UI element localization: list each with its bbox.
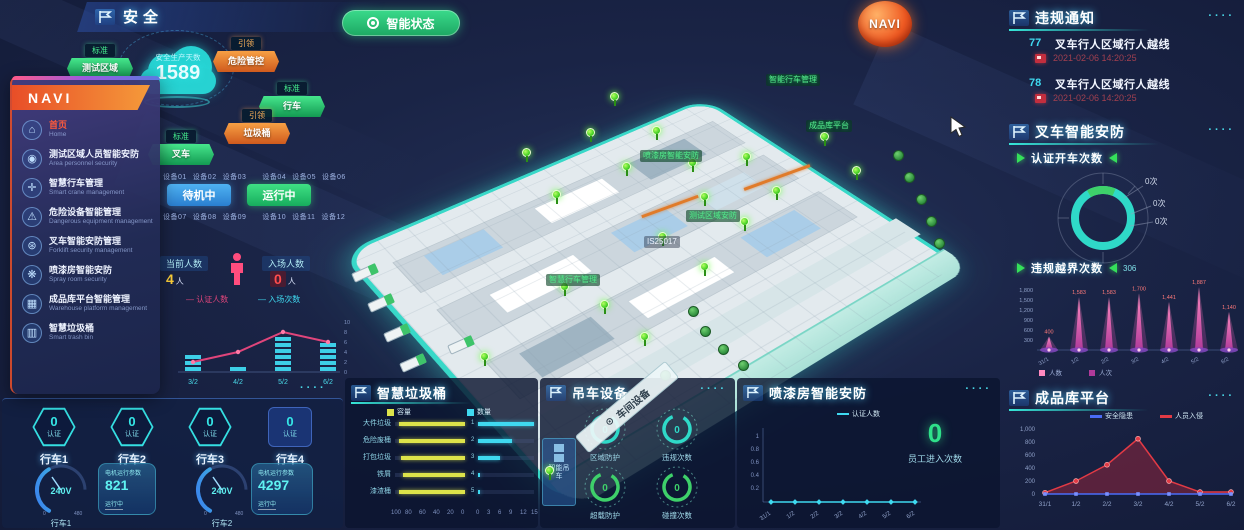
legend-label: 安全隐患 <box>1105 411 1133 421</box>
device-tag: 设备11 <box>292 212 315 222</box>
svg-text:200: 200 <box>1025 479 1036 485</box>
person-icon <box>228 252 246 291</box>
svg-text:240V: 240V <box>50 486 71 496</box>
flag-icon <box>95 9 115 25</box>
sidebar-item-5[interactable]: ⊛叉车智能安防管理Forklift security management <box>22 236 156 256</box>
trash-bar-track <box>478 490 534 494</box>
navi-logo-text: NAVI <box>869 17 901 31</box>
axis-tick: 12 <box>520 510 527 516</box>
trash-count-bar <box>478 422 534 426</box>
legend-hazard: 安全隐患 <box>1090 411 1133 421</box>
dashboard-screen: 智能行车管理成品库平台喷漆房智能安防测试区域安防智慧行车管理IS25017⊙车间… <box>0 0 1244 530</box>
legend-capacity: 容量 <box>387 407 411 417</box>
crane-ring-label: 违规次数 <box>647 452 707 463</box>
svg-text:1/2: 1/2 <box>1070 357 1080 366</box>
trash-row-num: 5 <box>471 488 474 494</box>
running-button-label: 运行中 <box>263 187 296 203</box>
badge-name: 垃圾桶 <box>224 123 290 144</box>
legend-count-label: 数量 <box>477 407 491 417</box>
employee-entry-value: 0 <box>905 418 965 449</box>
violation-title: 叉车行人区域行人越线 <box>1055 76 1170 92</box>
sidebar-item-3[interactable]: ✛智慧行车管理Smart crane management <box>22 178 156 198</box>
crane-ring-gauge: 0 <box>654 464 700 510</box>
device-tag: 设备09 <box>223 212 247 222</box>
violation-row[interactable]: 78叉车行人区域行人越线2021-02-06 14:20:25 <box>1005 74 1241 112</box>
standby-button[interactable]: 待机中 <box>167 184 231 206</box>
play-icon <box>1017 153 1025 163</box>
badge-危险管控: 引领危险管控 <box>213 33 279 72</box>
svg-text:4/2: 4/2 <box>233 379 243 386</box>
badge-tier: 标准 <box>166 130 196 143</box>
trash-count-bar <box>478 473 480 477</box>
svg-text:0.6: 0.6 <box>751 460 760 466</box>
motor-card-value: 4297 <box>258 477 306 493</box>
panel-dots[interactable]: ···· <box>700 383 727 395</box>
svg-text:1,800: 1,800 <box>1019 288 1033 294</box>
paint-chart-svg: 10.80.60.40.2 31/11/22/23/24/25/26/2 <box>741 414 931 520</box>
svg-text:1/2: 1/2 <box>786 510 797 520</box>
trash-bar-track <box>395 456 465 460</box>
warning-icon: ⚠ <box>22 207 42 227</box>
sidebar-item-label: 成品库平台智能管理 <box>49 294 147 305</box>
hex-box: 0认证 <box>268 407 312 447</box>
smart-crane-label: 智能吊车 <box>546 465 572 481</box>
cross-border-chart: 1,8001,5001,200900600300 400 31/1 1,583 … <box>1005 274 1241 385</box>
svg-text:31/1: 31/1 <box>759 510 773 520</box>
trash-cat-label: 大件垃圾 <box>347 420 391 428</box>
svg-text:400: 400 <box>1044 330 1053 336</box>
sidebar-item-label: 喷漆房智能安防 <box>49 265 112 276</box>
device-tag: 设备04 <box>262 172 286 182</box>
cursor-icon <box>950 116 970 138</box>
gauge-name: 行车1 <box>31 518 91 529</box>
sidebar-item-text: 智慧垃圾桶Smart trash bin <box>49 323 94 342</box>
panel-dots[interactable]: ···· <box>965 383 992 395</box>
trash-bar-track <box>478 439 534 443</box>
svg-text:480: 480 <box>235 511 244 517</box>
voltage-gauge: 240V 0 480 <box>26 459 96 519</box>
svg-text:1,441: 1,441 <box>1162 295 1176 301</box>
svg-text:1,700: 1,700 <box>1132 286 1146 292</box>
svg-text:0: 0 <box>204 511 207 517</box>
svg-text:2: 2 <box>344 360 347 366</box>
enter-people-label: 入场人数 <box>262 256 310 271</box>
svg-text:0: 0 <box>344 370 347 376</box>
sidebar-item-text: 首页Home <box>49 120 67 139</box>
trash-cat-label: 打包垃圾 <box>347 454 391 462</box>
cross-chart-svg: 1,8001,5001,200900600300 400 31/1 1,583 … <box>1005 274 1241 380</box>
device-tag: 设备08 <box>193 212 217 222</box>
crane-thumb <box>554 444 564 452</box>
hex-value: 0 <box>206 415 213 429</box>
device-tag: 设备10 <box>262 212 286 222</box>
svg-text:900: 900 <box>1024 318 1033 324</box>
play-back-icon <box>1109 263 1117 273</box>
violation-panel: 违规通知 ···· 77叉车行人区域行人越线2021-02-06 14:20:2… <box>1005 4 1241 116</box>
trash-bar-track <box>478 422 534 426</box>
donut-svg: 0次 0次 0次 <box>1035 162 1185 272</box>
axis-tick: 15 <box>531 510 538 516</box>
svg-text:6: 6 <box>344 340 347 346</box>
status-button[interactable]: 智能状态 <box>342 10 460 36</box>
svg-text:10: 10 <box>344 320 350 326</box>
svg-text:600: 600 <box>1024 328 1033 334</box>
sidebar-item-2[interactable]: ◉测试区域人员智能安防Area personnel security <box>22 149 156 169</box>
svg-text:800: 800 <box>1025 440 1036 446</box>
legend-count: 数量 <box>467 407 491 417</box>
trash-row-num: 3 <box>471 454 474 460</box>
svg-text:4/2: 4/2 <box>1164 501 1173 508</box>
svg-text:2/2: 2/2 <box>810 510 821 520</box>
svg-text:2/2: 2/2 <box>1102 501 1111 508</box>
sidebar-item-text: 成品库平台智能管理Warehouse platform management <box>49 294 147 313</box>
svg-text:2/2: 2/2 <box>1100 357 1110 366</box>
flag-icon <box>1009 10 1029 26</box>
crane-icon: ✛ <box>22 178 42 198</box>
forklift-panel-title: 叉车智能安防 <box>1035 122 1125 142</box>
crane-hex-行车1: 0认证 <box>32 407 76 447</box>
sidebar-item-4[interactable]: ⚠危险设备智能管理Dangerous equipment management <box>22 207 156 227</box>
sidebar-item-1[interactable]: ⌂首页Home <box>22 120 156 140</box>
svg-text:1: 1 <box>756 434 760 440</box>
svg-text:0.2: 0.2 <box>751 486 760 492</box>
hex-label: 认证 <box>47 429 61 439</box>
trash-capacity-bar <box>403 473 465 477</box>
svg-text:0: 0 <box>674 425 680 436</box>
employee-entry-label: 员工进入次数 <box>882 452 988 465</box>
sidebar-item-sub: Dangerous equipment management <box>49 218 153 226</box>
sidebar-item-label: 智慧垃圾桶 <box>49 323 94 334</box>
crane-hex-行车2: 0认证 <box>110 407 154 447</box>
crane-ring-label: 超载防护 <box>575 510 635 521</box>
motor-card-title: 电机运行参数 <box>258 468 306 477</box>
trash-capacity-bar <box>401 456 465 460</box>
cross-border-panel: 违规越界次数 306 1,8001,5001,200900600300 400 … <box>1005 258 1241 385</box>
trash-row-num: 4 <box>471 471 474 477</box>
running-button[interactable]: 运行中 <box>247 184 311 206</box>
motor-card: 电机运行参数821运行中 <box>98 463 156 515</box>
badge-tier: 标准 <box>277 82 307 95</box>
sidebar-title-text: NAVI <box>28 90 72 106</box>
motor-card-sub: 运行中 <box>105 499 123 510</box>
hex-value: 0 <box>50 415 57 429</box>
svg-text:0: 0 <box>674 483 680 494</box>
hex-value: 0 <box>286 415 293 429</box>
sidebar-item-label: 叉车智能安防管理 <box>49 236 132 247</box>
svg-text:4/2: 4/2 <box>1160 357 1170 366</box>
flag-icon <box>546 385 566 401</box>
violation-panel-title: 违规通知 <box>1035 8 1095 28</box>
svg-text:5/2: 5/2 <box>278 379 288 386</box>
sidebar-item-sub: Warehouse platform management <box>49 305 147 313</box>
axis-tick: 0 <box>461 510 464 516</box>
current-people-label: 当前人数 <box>160 256 208 271</box>
svg-text:0.8: 0.8 <box>751 447 760 453</box>
warehouse-panel-title: 成品库平台 <box>1035 388 1110 408</box>
trash-count-bar <box>478 439 512 443</box>
panel-dots[interactable]: ···· <box>1208 124 1235 136</box>
sidebar-item-label: 测试区域人员智能安防 <box>49 149 139 160</box>
target-icon <box>367 17 379 29</box>
trash-bar-track <box>395 473 465 477</box>
svg-text:6/2: 6/2 <box>323 379 333 386</box>
panel-dots[interactable]: ···· <box>1208 390 1235 402</box>
violation-row[interactable]: 77叉车行人区域行人越线2021-02-06 14:20:25 <box>1005 34 1241 72</box>
trash-bar-track <box>478 473 534 477</box>
sidebar-item-text: 叉车智能安防管理Forklift security management <box>49 236 132 255</box>
device-tag: 设备01 <box>163 172 187 182</box>
trash-cat-label: 铁屑 <box>347 471 391 479</box>
flag-icon <box>1009 124 1029 140</box>
svg-text:3/2: 3/2 <box>1130 357 1140 366</box>
svg-text:1,140: 1,140 <box>1222 305 1236 311</box>
flag-icon <box>743 385 763 401</box>
current-people-value: 4人 <box>166 271 184 287</box>
svg-text:0: 0 <box>1032 492 1036 498</box>
cross-border-title: 违规越界次数 <box>1031 260 1103 276</box>
violation-photo-icon <box>1035 54 1046 63</box>
page-title: 安全 <box>123 6 163 27</box>
svg-text:1,583: 1,583 <box>1072 290 1086 296</box>
svg-text:0次: 0次 <box>1153 198 1165 208</box>
svg-text:600: 600 <box>1025 453 1036 459</box>
enter-people-value: 0人 <box>270 271 296 287</box>
warehouse-chart: 1,0008006004002000 31/11/22/23/24/25/26/… <box>1005 419 1241 516</box>
device-tag: 设备05 <box>292 172 316 182</box>
badge-垃圾桶: 引领垃圾桶 <box>224 105 290 144</box>
crane-status-panel: 0认证行车10认证行车20认证行车30认证行车4 240V 0 480行车1 2… <box>2 398 343 528</box>
crane-panel-title: 吊车设备 <box>572 383 628 402</box>
svg-text:31/1: 31/1 <box>1038 357 1050 368</box>
enter-people-number: 0 <box>270 271 286 287</box>
axis-tick: 40 <box>433 510 440 516</box>
svg-text:4/2: 4/2 <box>858 510 869 520</box>
sidebar-item-sub: Home <box>49 131 67 139</box>
axis-tick: 20 <box>447 510 454 516</box>
play-icon <box>1017 263 1025 273</box>
sidebar-item-6[interactable]: ❋喷漆房智能安防Spray room security <box>22 265 156 285</box>
trash-count-bar <box>478 490 480 494</box>
crane-hex-行车4: 0认证 <box>268 407 312 447</box>
svg-text:0次: 0次 <box>1145 176 1157 186</box>
navi-sidebar: NAVI ⌂首页Home◉测试区域人员智能安防Area personnel se… <box>10 76 160 394</box>
sidebar-item-text: 喷漆房智能安防Spray room security <box>49 265 112 284</box>
trash-bar-track <box>478 456 534 460</box>
motor-card: 电机运行参数4297运行中 <box>251 463 313 515</box>
svg-text:1,583: 1,583 <box>1102 290 1116 296</box>
device-tag: 设备12 <box>321 212 345 222</box>
standby-button-label: 待机中 <box>183 187 216 203</box>
warehouse-chart-svg: 1,0008006004002000 31/11/22/23/24/25/26/… <box>1005 419 1241 511</box>
trash-cat-label: 危险废桶 <box>347 437 391 445</box>
sidebar-item-label: 智慧行车管理 <box>49 178 124 189</box>
svg-text:人数: 人数 <box>1049 368 1063 377</box>
crane-ring-label: 碰撞次数 <box>647 510 707 521</box>
warehouse-panel: 成品库平台 ···· 安全隐患人员入侵 1,0008006004002000 3… <box>1005 385 1241 528</box>
badge-tier: 标准 <box>85 44 115 57</box>
smart-crane-box[interactable]: 智能吊车 <box>542 438 576 506</box>
legend-swatch <box>1090 415 1102 418</box>
warehouse-icon: ▦ <box>22 294 42 314</box>
status-button-label: 智能状态 <box>386 15 434 32</box>
svg-text:31/1: 31/1 <box>1039 501 1052 508</box>
device-tag-row: 设备01设备02设备03设备04设备05设备06 <box>163 172 346 182</box>
svg-text:0: 0 <box>602 425 608 436</box>
flag-icon <box>1009 390 1029 406</box>
axis-tick: 0 <box>476 510 479 516</box>
crane-ring-label: 区域防护 <box>575 452 635 463</box>
violation-title: 叉车行人区域行人越线 <box>1055 36 1170 52</box>
gauge-name: 行车2 <box>192 518 252 529</box>
trash-count-bar <box>478 456 500 460</box>
motor-card-sub: 运行中 <box>258 499 276 510</box>
svg-text:1,887: 1,887 <box>1192 280 1206 286</box>
trash-bar-track <box>395 422 465 426</box>
people-icon: ◉ <box>22 149 42 169</box>
svg-text:8: 8 <box>344 330 347 336</box>
forklift-panel: 叉车智能安防 ···· 认证开车次数 0次 0次 0次 <box>1005 118 1241 256</box>
svg-text:5/2: 5/2 <box>1195 501 1204 508</box>
paint-chart: 10.80.60.40.2 31/11/22/23/24/25/26/2 <box>741 414 931 525</box>
sidebar-title: NAVI <box>12 85 150 110</box>
legend-label: 人员入侵 <box>1175 411 1203 421</box>
device-tag: 设备03 <box>223 172 247 182</box>
violation-time: 2021-02-06 14:20:25 <box>1053 93 1137 103</box>
axis-tick: 6 <box>498 510 501 516</box>
crane-ring-gauge: 0 <box>654 406 700 452</box>
trash-panel: 智慧垃圾桶 容量 数量 大件垃圾危险废桶打包垃圾铁屑漆渣桶10080604020… <box>345 378 538 528</box>
navi-logo: NAVI <box>858 1 912 47</box>
legend-swatch <box>1160 415 1172 418</box>
svg-text:240V: 240V <box>211 486 232 496</box>
cross-border-badge: 306 <box>1123 264 1136 273</box>
badge-tier: 引领 <box>242 109 272 122</box>
current-people-number: 4 <box>166 271 174 287</box>
svg-text:— 入场次数: — 入场次数 <box>258 294 300 304</box>
crane-thumb <box>554 454 564 462</box>
trash-cat-label: 漆渣桶 <box>347 488 391 496</box>
sidebar-item-sub: Smart crane management <box>49 189 124 197</box>
panel-dots[interactable]: ···· <box>1208 10 1235 22</box>
paint-panel-title: 喷漆房智能安防 <box>769 383 867 402</box>
svg-text:6/2: 6/2 <box>906 510 917 520</box>
voltage-gauge: 240V 0 480 <box>187 459 257 519</box>
violation-time: 2021-02-06 14:20:25 <box>1053 53 1137 63</box>
svg-text:480: 480 <box>74 511 83 517</box>
svg-text:3/2: 3/2 <box>188 379 198 386</box>
hex-label: 认证 <box>283 429 297 439</box>
hex-value: 0 <box>128 415 135 429</box>
spray-icon: ❋ <box>22 265 42 285</box>
current-people-unit: 人 <box>176 277 184 286</box>
axis-tick: 3 <box>487 510 490 516</box>
auth-drive-label: 认证开车次数 <box>1031 150 1103 166</box>
violation-id: 78 <box>1029 77 1041 89</box>
sidebar-menu: ⌂首页Home◉测试区域人员智能安防Area personnel securit… <box>22 120 156 352</box>
badge-name: 危险管控 <box>213 51 279 72</box>
svg-text:6/2: 6/2 <box>1226 501 1235 508</box>
device-tag-row: 设备07设备08设备09设备10设备11设备12 <box>163 212 345 222</box>
svg-text:3/2: 3/2 <box>1133 501 1142 508</box>
sidebar-item-text: 智慧行车管理Smart crane management <box>49 178 124 197</box>
device-tag: 设备06 <box>322 172 346 182</box>
hex-label: 认证 <box>203 429 217 439</box>
sidebar-item-8[interactable]: ▥智慧垃圾桶Smart trash bin <box>22 323 156 343</box>
legend-intrusion: 人员入侵 <box>1160 411 1203 421</box>
sidebar-item-sub: Area personnel security <box>49 160 139 168</box>
trash-panel-title: 智慧垃圾桶 <box>377 383 447 402</box>
svg-text:0.4: 0.4 <box>751 473 760 479</box>
motor-card-title: 电机运行参数 <box>105 468 149 477</box>
enter-people-unit: 人 <box>288 277 296 286</box>
sidebar-item-sub: Forklift security management <box>49 247 132 255</box>
sidebar-item-7[interactable]: ▦成品库平台智能管理Warehouse platform management <box>22 294 156 314</box>
svg-text:1,200: 1,200 <box>1019 308 1033 314</box>
trash-capacity-bar <box>399 439 466 443</box>
forklift-icon: ⊛ <box>22 236 42 256</box>
svg-text:— 认证人数: — 认证人数 <box>186 294 228 304</box>
svg-text:1,500: 1,500 <box>1019 298 1033 304</box>
sidebar-item-sub: Spray room security <box>49 276 112 284</box>
legend-capacity-label: 容量 <box>397 407 411 417</box>
svg-text:0: 0 <box>602 483 608 494</box>
axis-tick: 9 <box>509 510 512 516</box>
sidebar-item-text: 测试区域人员智能安防Area personnel security <box>49 149 139 168</box>
crane-ring-gauge: 0 <box>582 464 628 510</box>
hex-label: 认证 <box>125 429 139 439</box>
trash-row-num: 1 <box>471 420 474 426</box>
entry-chart-svg: — 认证人数 — 入场次数10864203/24/25/26/2 <box>148 292 358 388</box>
motor-card-value: 821 <box>105 477 149 493</box>
svg-text:3/2: 3/2 <box>834 510 845 520</box>
violation-id: 77 <box>1029 37 1041 49</box>
svg-text:5/2: 5/2 <box>882 510 893 520</box>
play-back-icon <box>1109 153 1117 163</box>
svg-text:4: 4 <box>344 350 347 356</box>
badge-tier: 引领 <box>231 37 261 50</box>
trash-capacity-bar <box>399 422 466 426</box>
badge-测试区域: 标准测试区域 <box>67 40 133 79</box>
axis-tick: 100 <box>391 510 401 516</box>
svg-text:1,000: 1,000 <box>1020 427 1036 433</box>
trash-capacity-bar <box>399 490 466 494</box>
svg-text:人次: 人次 <box>1099 368 1113 377</box>
sidebar-item-text: 危险设备智能管理Dangerous equipment management <box>49 207 153 226</box>
trash-row-num: 2 <box>471 437 474 443</box>
violation-photo-icon <box>1035 94 1046 103</box>
legend-swatch <box>387 409 394 416</box>
crane-ring-gauge: 0 <box>582 406 628 452</box>
device-tag: 设备02 <box>193 172 217 182</box>
svg-text:400: 400 <box>1025 466 1036 472</box>
device-tag: 设备07 <box>163 212 187 222</box>
home-icon: ⌂ <box>22 120 42 140</box>
trash-icon: ▥ <box>22 323 42 343</box>
axis-tick: 60 <box>419 510 426 516</box>
trash-bar-track <box>395 439 465 443</box>
entry-chart: — 认证人数 — 入场次数10864203/24/25/26/2 <box>148 292 358 393</box>
svg-text:5/2: 5/2 <box>1190 357 1200 366</box>
svg-text:300: 300 <box>1024 338 1033 344</box>
sidebar-item-label: 首页 <box>49 120 67 131</box>
trash-bar-track <box>395 490 465 494</box>
sidebar-item-label: 危险设备智能管理 <box>49 207 153 218</box>
axis-tick: 80 <box>405 510 412 516</box>
crane-hex-行车3: 0认证 <box>188 407 232 447</box>
sidebar-item-sub: Smart trash bin <box>49 334 94 342</box>
app-header: 安全 <box>95 6 163 27</box>
svg-text:1/2: 1/2 <box>1071 501 1080 508</box>
